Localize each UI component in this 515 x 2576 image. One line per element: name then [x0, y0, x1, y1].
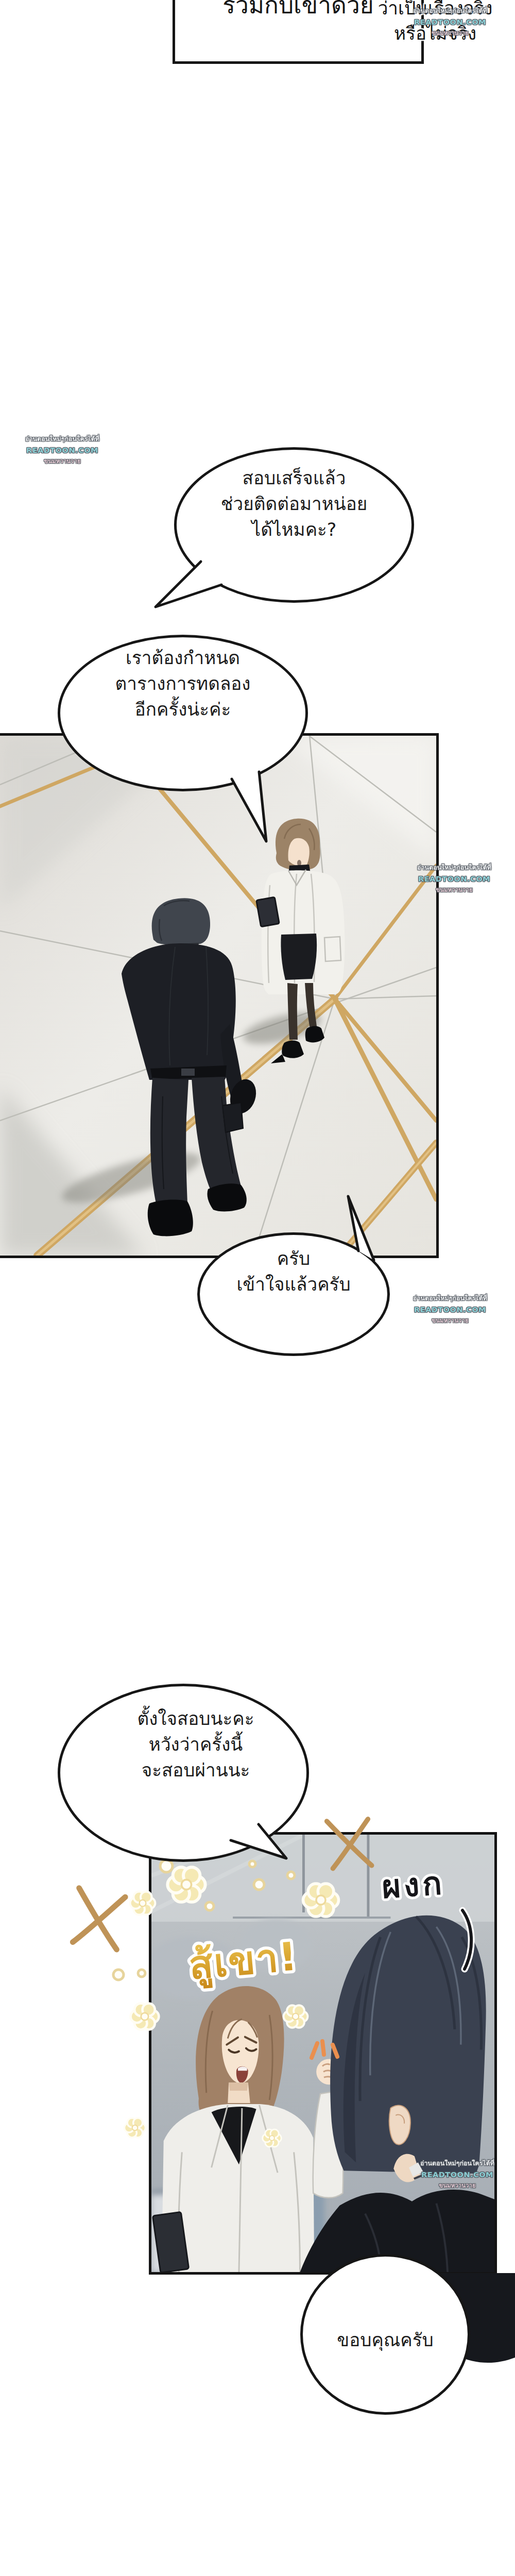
bubble1-tail — [149, 556, 227, 613]
watermark-tagline: อ่านตอนใหม่ๆก่อนใครได้ที่ — [417, 862, 491, 873]
bubble1-line2: ช่วยติดต่อมาหน่อย — [221, 491, 367, 517]
watermark-tagline: อ่านตอนใหม่ๆก่อนใครได้ที่ — [413, 1293, 487, 1303]
watermark-group: ขนมหวานวาย — [420, 2181, 494, 2190]
watermark-tagline: อ่านตอนใหม่ๆก่อนใครได้ที่ — [413, 6, 487, 16]
watermark-group: ขนมหวานวาย — [25, 456, 99, 466]
man-shoe-right — [207, 1183, 246, 1211]
woman-skirt — [281, 934, 317, 980]
bubble4-tail — [227, 1821, 294, 1865]
site-watermark: อ่านตอนใหม่ๆก่อนใครได้ที่ READTOON.COM ข… — [25, 434, 99, 466]
man-shoe-left — [148, 1200, 193, 1236]
man-leg-left — [150, 1078, 188, 1206]
lab-floor-illustration — [0, 736, 436, 1256]
sfx-nod-text: ผงก — [381, 1864, 446, 1906]
panel-lab-floor — [0, 733, 439, 1258]
speech-bubble-5: ขอบคุณครับ — [300, 2254, 470, 2415]
flower-doodle — [284, 2005, 308, 2027]
site-watermark: อ่านตอนใหม่ๆก่อนใครได้ที่ READTOON.COM ข… — [420, 2158, 494, 2190]
watermark-tagline: อ่านตอนใหม่ๆก่อนใครได้ที่ — [420, 2158, 494, 2168]
watermark-site: READTOON.COM — [413, 1306, 487, 1314]
flower-doodle — [125, 2118, 146, 2138]
site-watermark: อ่านตอนใหม่ๆก่อนใครได้ที่ READTOON.COM ข… — [413, 6, 487, 38]
watermark-site: READTOON.COM — [417, 875, 491, 883]
watermark-site: READTOON.COM — [413, 18, 487, 26]
bubble2-line1: เราต้องกำหนด — [126, 645, 240, 671]
flower-doodle — [303, 1884, 339, 1917]
bubble3-tail — [340, 1189, 391, 1266]
site-watermark: อ่านตอนใหม่ๆก่อนใครได้ที่ READTOON.COM ข… — [417, 862, 491, 894]
bubble4-line1: ตั้งใจสอบนะคะ — [138, 1706, 254, 1732]
bubble1-line1: สอบเสร็จแล้ว — [243, 465, 346, 491]
bubble1-line3: ได้ไหมคะ? — [252, 517, 337, 543]
watermark-group: ขนมหวานวาย — [413, 1316, 487, 1325]
flower-doodle — [130, 1891, 156, 1914]
bubble2-tail — [224, 768, 276, 848]
sparkle-x-right — [327, 1817, 373, 1870]
watermark-tagline: อ่านตอนใหม่ๆก่อนใครได้ที่ — [25, 434, 99, 444]
flower-doodle — [263, 2129, 282, 2147]
bubble4-line2: หวังว่าครั้งนี้ — [149, 1732, 243, 1757]
watermark-site: READTOON.COM — [25, 446, 99, 454]
emphasis-marks — [312, 2041, 337, 2058]
webtoon-page: รวมกับเขาด้วย ว่าเป็นเรื่องจริง หรือไม่จ… — [0, 0, 515, 2576]
tablet — [256, 897, 279, 926]
sfx-cheer-text: สู้เขา! — [187, 1933, 300, 1990]
flower-doodle — [167, 1867, 205, 1902]
bubble5-line1: ขอบคุณครับ — [337, 2327, 433, 2353]
watermark-group: ขนมหวานวาย — [417, 885, 491, 894]
bubble4-line3: จะสอบผ่านนะ — [142, 1757, 250, 1783]
bubble3-line2: เข้าใจแล้วครับ — [236, 1272, 350, 1297]
flower-doodle — [131, 2004, 159, 2030]
watermark-group: ขนมหวานวาย — [413, 28, 487, 38]
bubble3-line1: ครับ — [277, 1246, 310, 1272]
bubble2-line2: ตารางการทดลอง — [115, 671, 251, 697]
site-watermark: อ่านตอนใหม่ๆก่อนใครได้ที่ READTOON.COM ข… — [413, 1293, 487, 1325]
sparkle-x-left — [72, 1888, 126, 1950]
bubble2-line3: อีกครั้งน่ะค่ะ — [135, 697, 231, 722]
watermark-site: READTOON.COM — [420, 2171, 494, 2179]
